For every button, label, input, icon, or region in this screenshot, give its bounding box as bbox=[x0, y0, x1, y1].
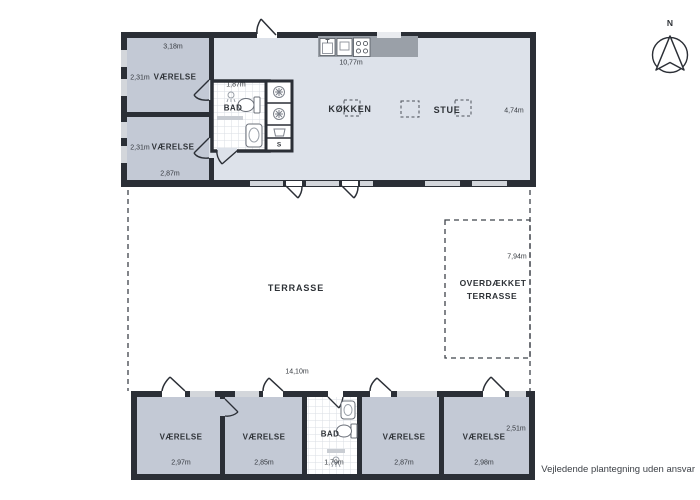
bedroom-divider-wall bbox=[127, 112, 209, 117]
sink-icon bbox=[246, 124, 262, 147]
door-swing bbox=[342, 186, 358, 198]
door-swing bbox=[370, 378, 391, 391]
dim-living-depth: 4,74m bbox=[504, 108, 523, 115]
room-label-bottom-bedroom: VÆRELSE bbox=[152, 143, 195, 152]
dim-kitchen-counter: 10,77m bbox=[339, 60, 362, 67]
toilet-icon bbox=[337, 424, 358, 438]
upper-bedrooms-floor bbox=[127, 38, 209, 180]
towel-bar-icon bbox=[327, 449, 345, 453]
dim-terrace-width: 14,10m bbox=[285, 369, 308, 376]
door-swing bbox=[162, 377, 185, 391]
dim-top-bedroom-depth: 2,31m bbox=[130, 75, 149, 82]
room-label-kitchen: KØKKEN bbox=[328, 104, 371, 114]
room-label-top-bedroom: VÆRELSE bbox=[154, 73, 197, 82]
room-label-upper-bathroom: BAD bbox=[224, 104, 243, 113]
room-label-lower-bedroom-2: VÆRELSE bbox=[243, 433, 286, 442]
closet-label: S bbox=[277, 142, 281, 149]
dim-bottom-bedroom-width: 2,87m bbox=[160, 171, 179, 178]
compass-icon bbox=[653, 36, 688, 73]
door-swing bbox=[483, 377, 505, 391]
kitchen-counter bbox=[318, 36, 418, 57]
dim-covered-terrace: 7,94m bbox=[507, 254, 526, 261]
room-label-lower-bedroom-3: VÆRELSE bbox=[383, 433, 426, 442]
dim-top-bedroom-width: 3,18m bbox=[163, 44, 182, 51]
dim-lower-bedroom-1: 2,97m bbox=[171, 460, 190, 467]
room-label-lower-bathroom: BAD bbox=[321, 430, 340, 439]
dim-upper-bathroom: 1,87m bbox=[226, 82, 245, 89]
room-label-living: STUE bbox=[434, 105, 461, 115]
utility-column bbox=[266, 81, 292, 151]
dim-bottom-bedroom-depth: 2,31m bbox=[130, 145, 149, 152]
covered-terrace-label-1: OVERDÆKKET bbox=[460, 278, 527, 288]
door-swing bbox=[263, 378, 283, 391]
kitchen-sink-icon bbox=[320, 39, 335, 56]
terrace-label: TERRASSE bbox=[268, 283, 324, 293]
dryer-icon bbox=[274, 109, 285, 120]
disclaimer-text: Vejledende plantegning uden ansvar bbox=[541, 464, 695, 475]
dim-lower-bedroom-4-depth: 2,51m bbox=[506, 426, 525, 433]
sink-icon bbox=[341, 401, 355, 419]
floorplan-page: 3,18m 2,31m VÆRELSE 2,31m VÆRELSE 2,87m … bbox=[0, 0, 700, 500]
room-label-lower-bedroom-1: VÆRELSE bbox=[160, 433, 203, 442]
dim-lower-bedroom-2: 2,85m bbox=[254, 460, 273, 467]
dishwasher-icon bbox=[337, 39, 352, 56]
floorplan-drawing bbox=[0, 0, 700, 500]
towel-bar-icon bbox=[217, 116, 243, 120]
door-swing bbox=[286, 186, 302, 198]
stove-icon bbox=[354, 38, 371, 57]
compass-north-label: N bbox=[667, 18, 673, 28]
washing-machine-icon bbox=[274, 87, 285, 98]
covered-terrace-outline bbox=[445, 220, 530, 358]
kitchen-window bbox=[377, 32, 401, 38]
dim-lower-bedroom-3: 2,87m bbox=[394, 460, 413, 467]
dim-lower-bedroom-4: 2,98m bbox=[474, 460, 493, 467]
room-label-lower-bedroom-4: VÆRELSE bbox=[463, 433, 506, 442]
covered-terrace-label-2: TERRASSE bbox=[467, 291, 517, 301]
upper-bathroom bbox=[212, 81, 269, 164]
dim-lower-bathroom: 1,79m bbox=[324, 460, 343, 467]
